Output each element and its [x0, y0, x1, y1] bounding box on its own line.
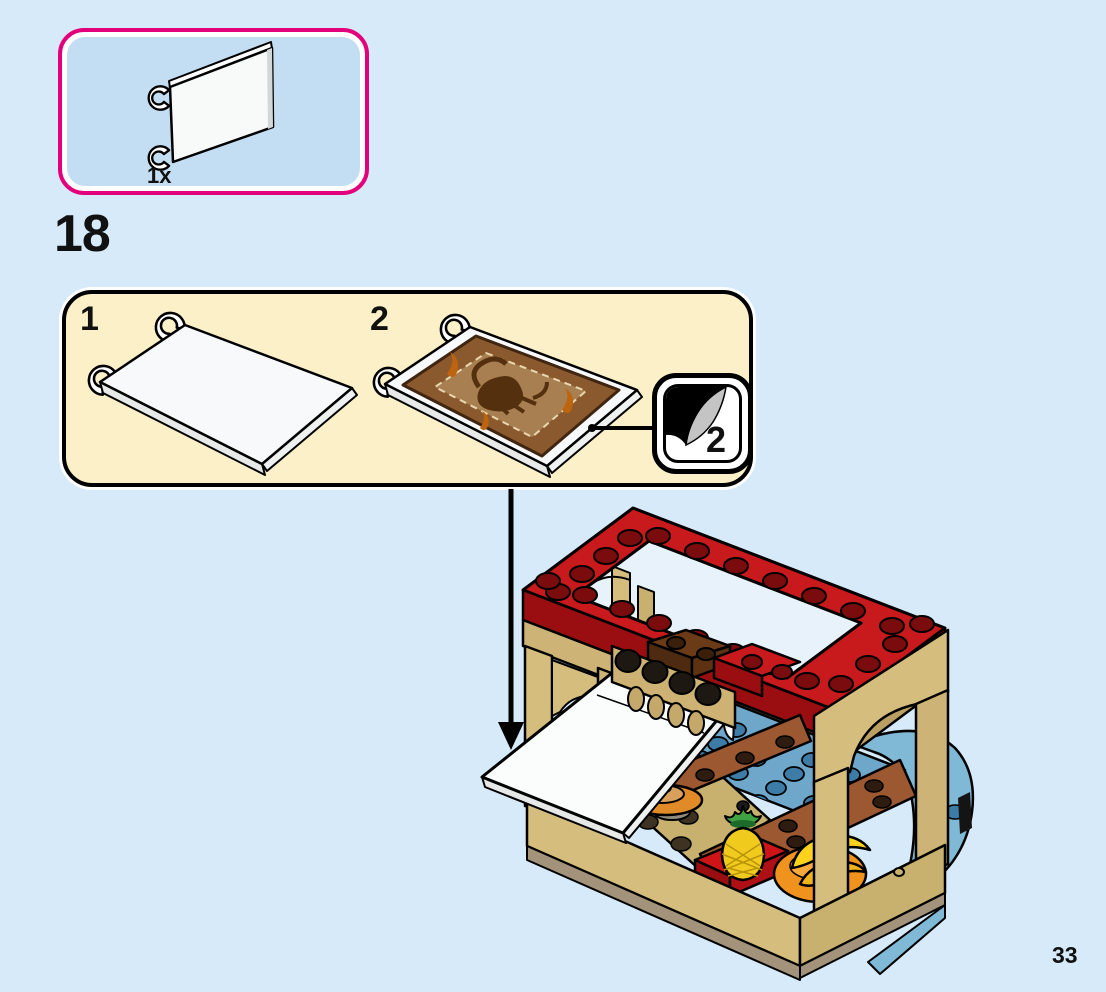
parts-flag-thumbnail [149, 42, 273, 170]
sticker-callout-box: 2 [652, 373, 753, 474]
clip-icon [149, 86, 169, 109]
peeling-sticker-icon [666, 387, 742, 463]
substep-2-label: 2 [370, 300, 389, 339]
sticker-number: 2 [706, 420, 726, 460]
lego-model [482, 508, 973, 980]
substep2-flag-with-sticker [368, 309, 642, 477]
sticker-callout-inner: 2 [663, 384, 742, 463]
instruction-page: 1x 18 1 2 2 33 [0, 0, 1106, 992]
parts-count-label: 1x [147, 163, 171, 189]
down-arrow-icon [498, 489, 524, 750]
artwork-layer [0, 0, 1106, 992]
step-number: 18 [54, 204, 110, 264]
page-number: 33 [1052, 942, 1078, 969]
substep1-flag [83, 307, 357, 475]
substep-1-label: 1 [80, 300, 99, 339]
